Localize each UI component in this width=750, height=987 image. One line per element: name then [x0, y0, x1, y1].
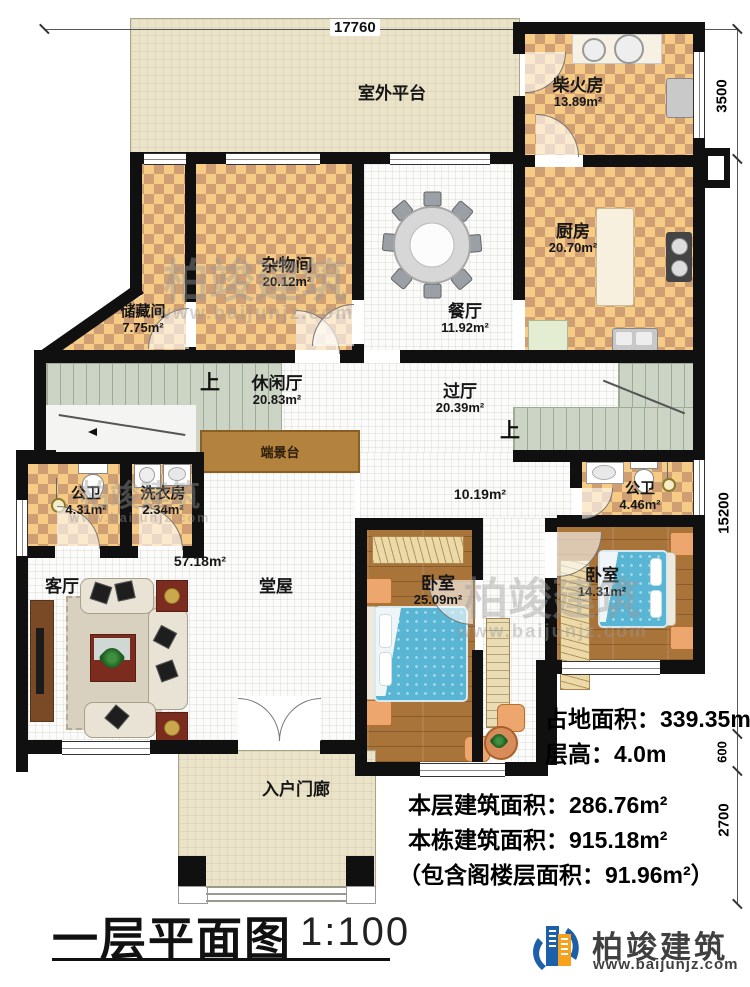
- wall: [150, 740, 238, 754]
- wardrobe: [372, 536, 464, 564]
- wall: [583, 155, 705, 167]
- laundry-area: 2.34m²: [140, 503, 185, 518]
- wall: [34, 350, 295, 363]
- wall: [513, 167, 525, 300]
- wall: [513, 155, 535, 167]
- storage-area: 7.75m²: [120, 321, 165, 336]
- brand-site-text: www.baijunjz.com: [593, 956, 738, 973]
- corridor-area-label: 10.19m²: [454, 487, 506, 503]
- wall: [130, 164, 142, 295]
- wall: [693, 22, 705, 52]
- platform-name: 室外平台: [358, 84, 426, 103]
- bath-right-name: 公卫: [619, 481, 660, 498]
- kitchen-name: 厨房: [549, 222, 597, 241]
- end-table-medallion: [164, 720, 180, 736]
- porch-pillar-base: [346, 886, 376, 904]
- hallway-name: 过厅: [436, 382, 484, 401]
- wall: [120, 452, 132, 558]
- room-label-bedroom-right: 卧室 14.31m²: [578, 566, 626, 600]
- wall: [545, 518, 557, 532]
- room-label-platform: 室外平台: [358, 84, 426, 103]
- wall: [367, 518, 483, 530]
- brand-logo-icon: [528, 918, 586, 978]
- sundry-name: 杂物间: [262, 256, 313, 275]
- dimension-top-value: 17760: [330, 19, 380, 36]
- staircase-right-lower: [513, 407, 695, 454]
- brand-site: www.baijunjz.com: [593, 956, 738, 973]
- wall: [34, 356, 46, 456]
- stat-this-floor-area: 本层建筑面积：286.76m²: [408, 786, 667, 820]
- kitchen-island: [596, 208, 634, 306]
- bedroom-left-name: 卧室: [414, 574, 462, 593]
- room-label-hall: 堂屋: [259, 577, 293, 596]
- sliding-door: [390, 153, 490, 165]
- room-label-firewood: 柴火房 13.89m²: [553, 76, 604, 110]
- porch-pillar: [178, 856, 206, 886]
- bedroom-right-area: 14.31m²: [578, 585, 626, 600]
- wall: [513, 450, 705, 462]
- room-label-storage: 储藏间 7.75m²: [120, 304, 165, 335]
- room-label-dining: 餐厅 11.92m²: [441, 302, 489, 336]
- kitchen-sink-basin: [636, 332, 652, 345]
- staircase-left-arrow: [88, 428, 97, 436]
- outdoor-platform-floor: [130, 18, 520, 160]
- window: [144, 153, 186, 165]
- hallway-area: 20.39m²: [436, 401, 484, 416]
- room-label-leisure: 休闲厅 20.83m²: [252, 374, 303, 408]
- porch-pillar: [346, 856, 374, 886]
- dim-3500: 3500: [714, 79, 731, 112]
- dimension-right-upper: 3500: [714, 79, 731, 112]
- dimension-right-small: 600: [715, 741, 730, 763]
- wall: [472, 518, 483, 580]
- hall-name: 堂屋: [259, 577, 293, 596]
- firewood-name: 柴火房: [553, 76, 604, 95]
- kitchen-stove-burner: [671, 238, 688, 255]
- wall: [557, 515, 705, 527]
- window: [693, 460, 705, 515]
- staircase-left-landing: [46, 405, 196, 452]
- wall: [693, 515, 705, 674]
- pull-light-icon: [662, 478, 676, 492]
- sofa-right: [148, 608, 188, 710]
- pillow: [650, 558, 662, 586]
- wall: [185, 164, 196, 302]
- chimney-inner: [708, 156, 724, 180]
- sundry-area: 20.12m²: [262, 275, 313, 290]
- stairs-up-label-right: 上: [500, 414, 520, 443]
- pull-light-cord: [56, 478, 57, 500]
- wall: [355, 518, 367, 776]
- floor-plan-canvas: 端景台: [0, 0, 750, 987]
- porch-step: [206, 900, 346, 902]
- washing-machine-drum: [139, 467, 155, 483]
- window: [693, 52, 705, 138]
- bedroom-right-name: 卧室: [578, 566, 626, 585]
- stove-pot-icon: [582, 38, 606, 62]
- nightstand: [364, 700, 392, 726]
- dimension-right-bottom: 2700: [716, 803, 733, 836]
- wall: [16, 740, 62, 754]
- pillow: [379, 614, 392, 648]
- stat-land-area: 占地面积：339.35m²: [545, 700, 750, 734]
- wall: [192, 452, 204, 558]
- wall: [570, 450, 582, 488]
- room-label-living: 客厅: [45, 577, 79, 596]
- kitchen-area: 20.70m²: [549, 241, 597, 256]
- dining-area: 11.92m²: [441, 321, 489, 336]
- room-label-kitchen: 厨房 20.70m²: [549, 222, 597, 256]
- kitchen-stove-burner: [671, 260, 688, 277]
- hall-area: 57.18m²: [174, 554, 226, 570]
- bathroom-sink-basin: [592, 465, 616, 480]
- kitchen-sink-basin: [616, 332, 632, 345]
- wall: [400, 350, 705, 363]
- stat-building-total-area: 本栋建筑面积：915.18m²: [408, 821, 667, 855]
- window: [62, 741, 150, 755]
- porch-step: [206, 886, 346, 888]
- scale-text: 1:100: [300, 910, 410, 954]
- end-table-medallion: [164, 588, 180, 604]
- leisure-name: 休闲厅: [252, 374, 303, 393]
- window: [562, 661, 660, 675]
- wall: [355, 762, 420, 776]
- porch-pillar-base: [178, 886, 208, 904]
- wall: [352, 164, 364, 300]
- room-label-bath-left: 公卫 4.31m²: [65, 486, 106, 517]
- kitchen-cabinet: [528, 320, 568, 352]
- wall: [660, 660, 705, 674]
- bath-left-name: 公卫: [65, 486, 106, 503]
- tv-screen: [36, 628, 44, 694]
- porch-step: [206, 893, 346, 895]
- wall: [320, 740, 367, 754]
- stairs-up-label-left: 上: [200, 366, 220, 395]
- firewood-sink: [666, 78, 694, 118]
- bedroom-left-area: 25.09m²: [414, 593, 462, 608]
- wall: [693, 162, 705, 460]
- window: [226, 153, 320, 165]
- dining-name: 餐厅: [441, 302, 489, 321]
- stove-pot-icon: [614, 34, 644, 64]
- console-table-label: 端景台: [260, 442, 299, 461]
- room-label-bedroom-left: 卧室 25.09m²: [414, 574, 462, 608]
- nightstand: [364, 578, 392, 604]
- storage-name: 储藏间: [120, 304, 165, 321]
- title-underline: [52, 958, 390, 961]
- dining-table-set: [380, 190, 484, 302]
- sofa-pillow: [114, 580, 135, 601]
- wall: [472, 650, 483, 762]
- bath-right-area: 4.46m²: [619, 498, 660, 513]
- dimension-right-main: 15200: [716, 492, 733, 534]
- room-label-hallway: 过厅 20.39m²: [436, 382, 484, 416]
- hall-area-label: 57.18m²: [174, 554, 226, 570]
- pillow: [650, 590, 662, 618]
- bath-left-area: 4.31m²: [65, 503, 106, 518]
- window: [420, 763, 505, 777]
- stat-floor-height: 层高：4.0m: [545, 735, 666, 769]
- living-name: 客厅: [45, 577, 79, 596]
- room-label-bath-right: 公卫 4.46m²: [619, 481, 660, 512]
- room-label-porch: 入户门廊: [262, 780, 330, 799]
- leisure-area: 20.83m²: [252, 393, 303, 408]
- corridor-area: 10.19m²: [454, 487, 506, 503]
- wall: [513, 22, 705, 34]
- dim-600: 600: [715, 741, 730, 763]
- dim-2700: 2700: [716, 803, 733, 836]
- laundry-sink-basin: [168, 467, 186, 481]
- wall: [100, 546, 138, 558]
- wall: [340, 350, 364, 363]
- dim-15200: 15200: [716, 492, 733, 534]
- porch-name: 入户门廊: [262, 780, 330, 799]
- stat-attic-note: （包含阁楼层面积：91.96m²）: [398, 856, 714, 890]
- room-label-sundry: 杂物间 20.12m²: [262, 256, 313, 290]
- laundry-name: 洗衣房: [140, 486, 185, 503]
- window: [16, 500, 28, 556]
- console-table: 端景台: [200, 430, 360, 473]
- wall: [16, 452, 204, 464]
- firewood-area: 13.89m²: [553, 95, 604, 110]
- pillow: [379, 652, 392, 686]
- drawing-scale: 1:100: [300, 910, 410, 955]
- wall: [513, 34, 525, 54]
- room-label-laundry: 洗衣房 2.34m²: [140, 486, 185, 517]
